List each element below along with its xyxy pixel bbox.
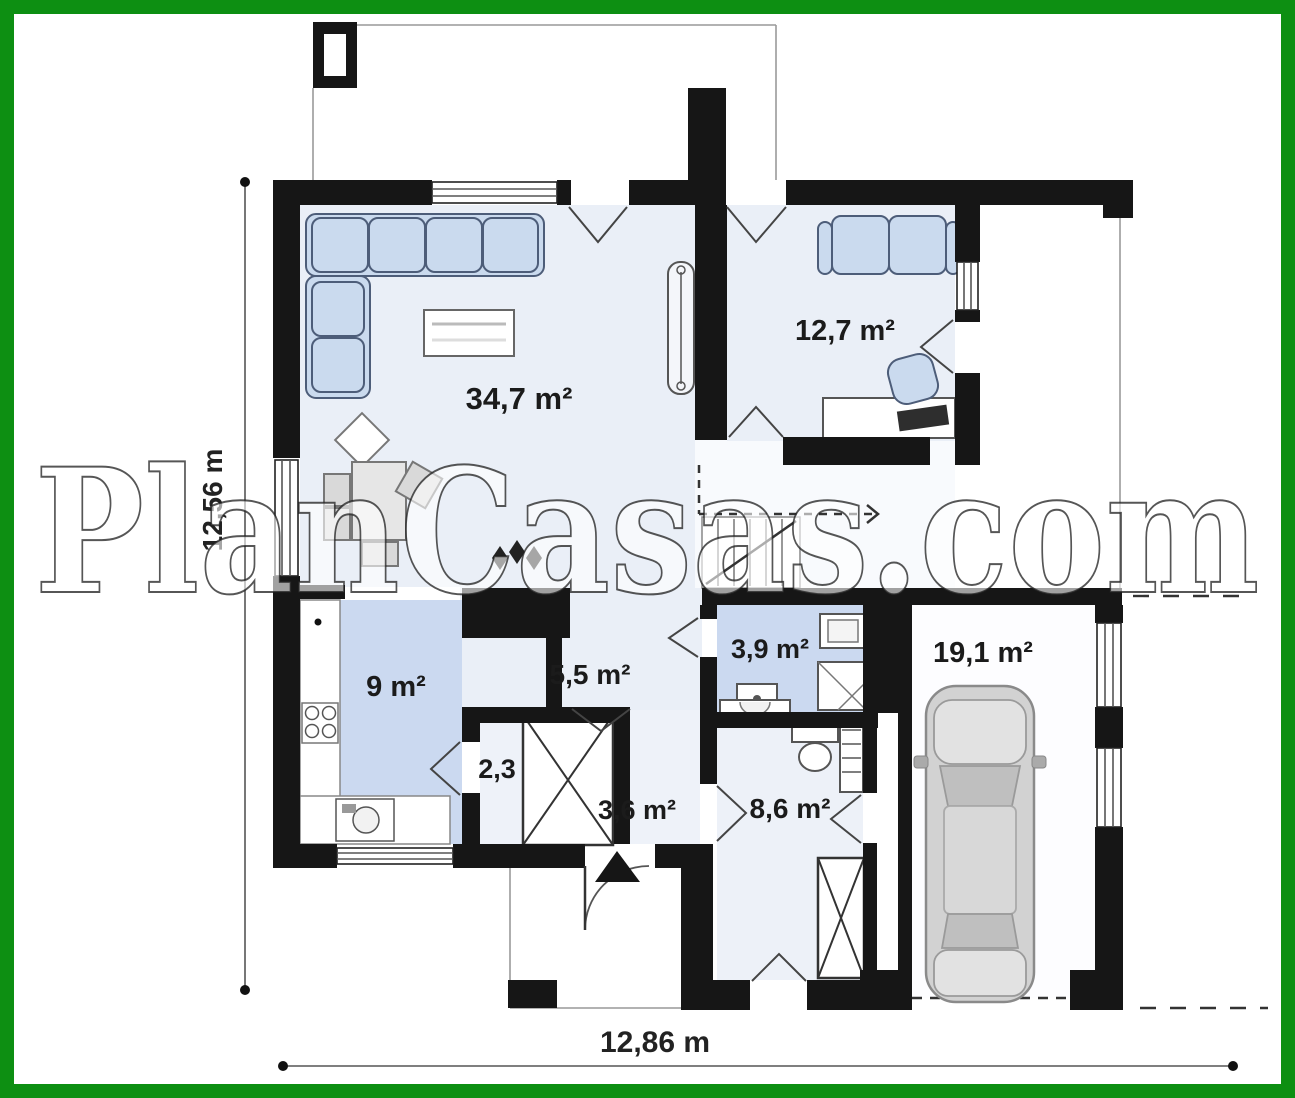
window-garage-1 [1097, 623, 1121, 707]
window-living-top [432, 182, 557, 203]
room-label-garage: 19,1 m² [933, 637, 1033, 669]
car-hood [934, 700, 1026, 764]
wc-bowl [799, 743, 831, 771]
car-windshield [940, 766, 1020, 806]
entrance-arrow [595, 851, 640, 882]
car [914, 686, 1046, 1002]
room-label-utility: 8,6 m² [750, 793, 831, 824]
window-kitchen [337, 848, 453, 864]
coffee-table [424, 310, 514, 356]
closet-wardrobe [523, 715, 613, 845]
floor-plan-page: 34,7 m² 12,7 m² 9 m² 5,5 m² 3,9 m² 2,3 3… [0, 0, 1295, 1098]
floor-plan-drawing: 34,7 m² 12,7 m² 9 m² 5,5 m² 3,9 m² 2,3 3… [0, 0, 1295, 1098]
boiler [840, 718, 863, 792]
washing-machine [336, 799, 394, 841]
window-garage-2 [1097, 748, 1121, 827]
room-label-living: 34,7 m² [466, 381, 573, 416]
room-label-kitchen: 9 m² [366, 671, 426, 703]
room-label-closet: 2,3 [478, 754, 516, 784]
car-roof [944, 806, 1016, 914]
room-label-bedroom: 12,7 m² [795, 315, 895, 347]
wall-pillar [688, 88, 726, 205]
dimension-width-label: 12,86 m [600, 1026, 710, 1059]
car-rear-window [942, 914, 1018, 948]
porch-step [508, 980, 557, 1008]
car-trunk [934, 950, 1026, 996]
radiator [668, 262, 694, 394]
watermark-text: PlanCasas.com [35, 430, 1260, 633]
chimney [313, 22, 357, 88]
car-mirror-left [914, 756, 928, 768]
car-mirror-right [1032, 756, 1046, 768]
entrance-door [585, 851, 649, 930]
room-label-entry: 3,6 m² [598, 795, 676, 825]
room-label-hall: 5,5 m² [550, 659, 631, 690]
bedroom-sofa [818, 216, 960, 274]
window-bedroom [957, 262, 978, 310]
room-label-bathroom: 3,9 m² [731, 634, 809, 664]
